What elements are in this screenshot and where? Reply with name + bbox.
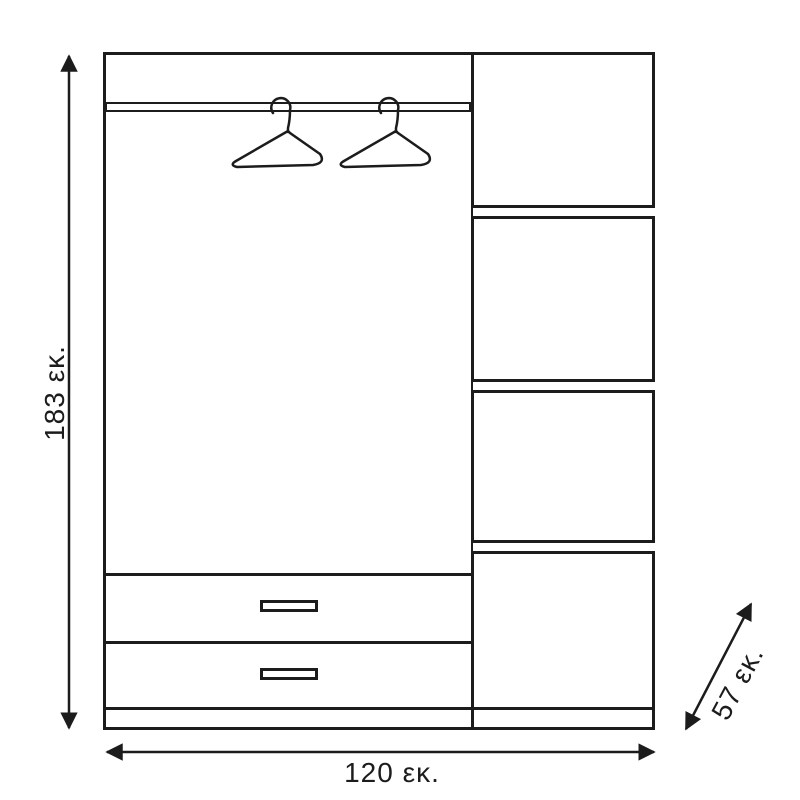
plinth-edge	[103, 707, 655, 710]
drawer-handle	[260, 600, 318, 612]
wardrobe-diagram: 183 εκ. 120 εκ. 57 εκ.	[0, 0, 800, 800]
hanging-rail	[105, 102, 471, 112]
shelf-board	[473, 379, 655, 393]
height-dimension-label: 183 εκ.	[40, 331, 70, 455]
drawer-handle	[260, 668, 318, 680]
shelf-board	[473, 205, 655, 219]
width-dimension-label: 120 εκ.	[292, 758, 492, 788]
drawer-divider-edge	[103, 641, 474, 644]
depth-dimension-label: 57 εκ.	[700, 630, 775, 736]
shelf-board	[473, 540, 655, 554]
drawer-top-edge	[103, 573, 474, 576]
